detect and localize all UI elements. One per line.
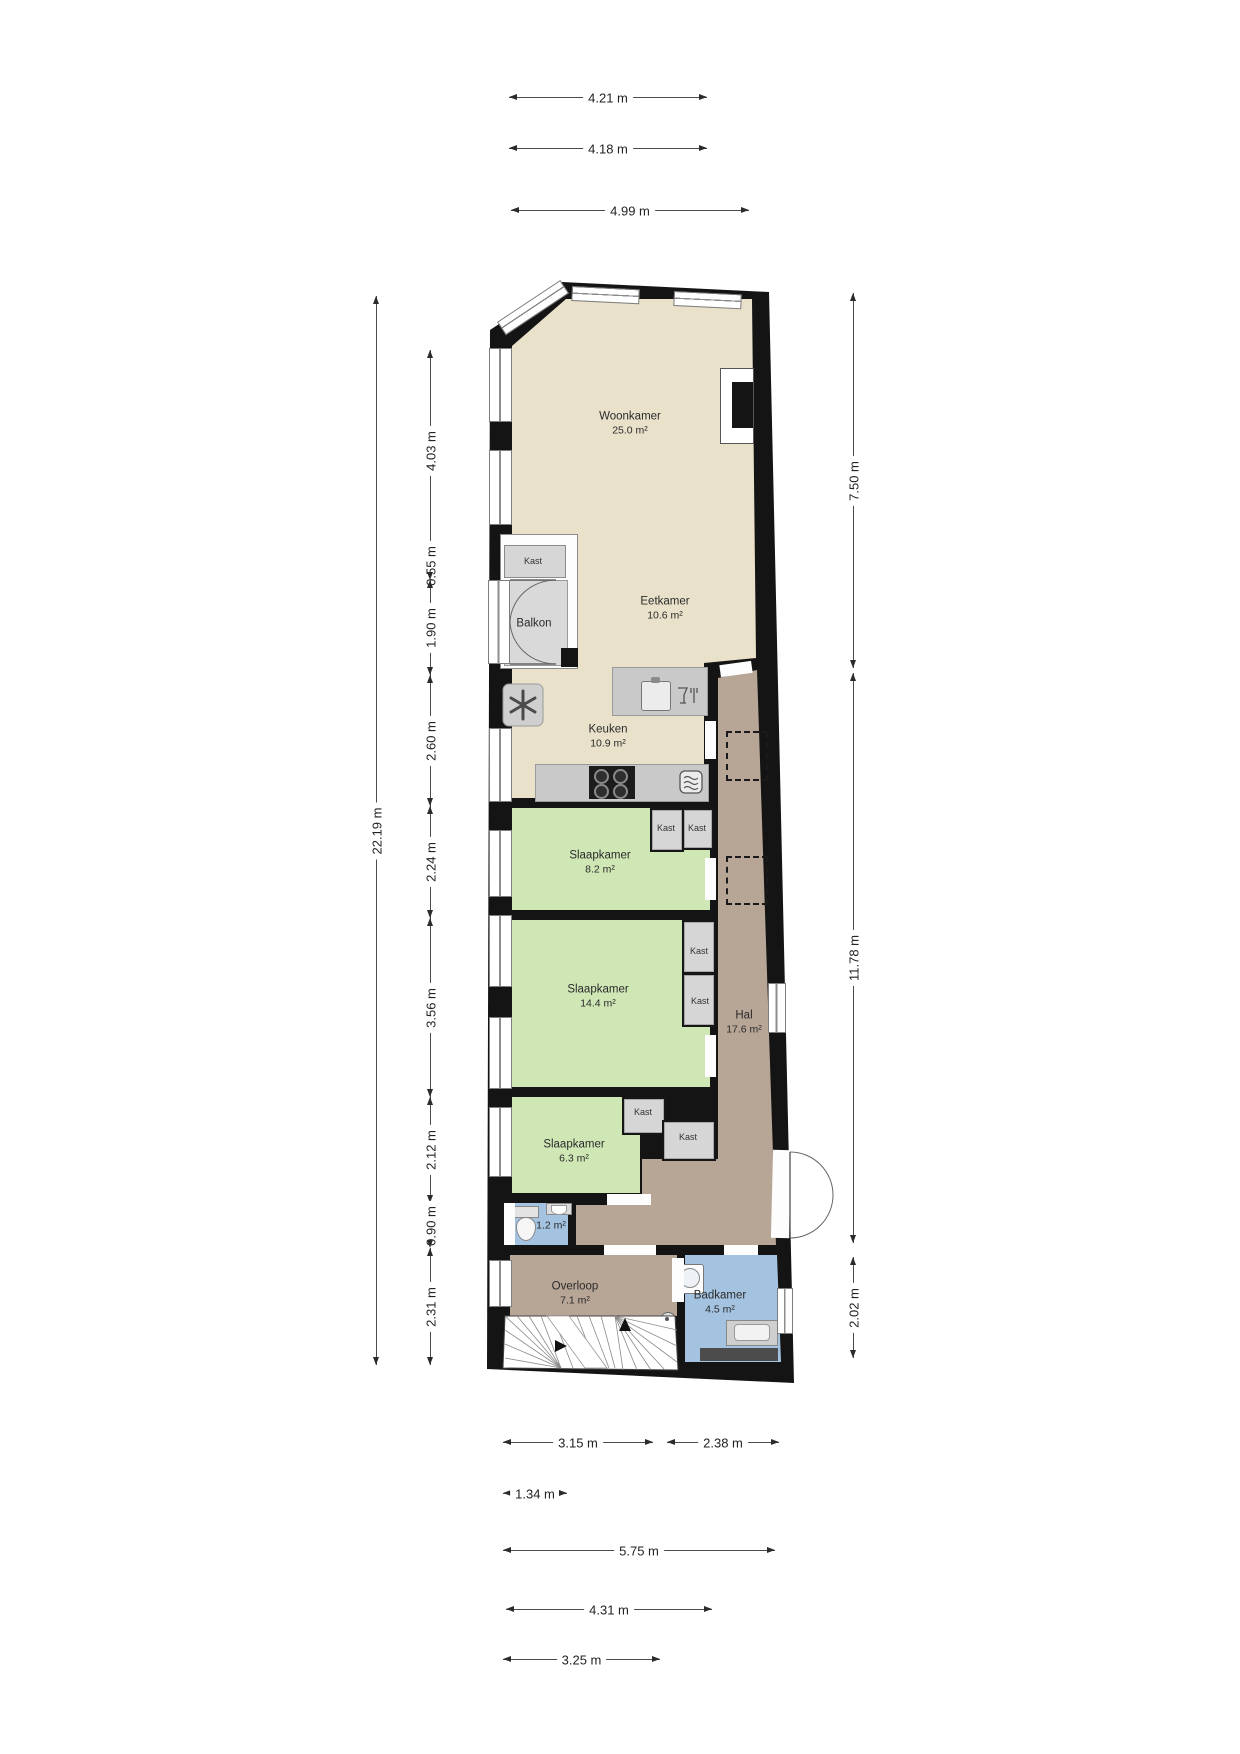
extractor-fan-icon (503, 684, 543, 726)
shaft-dashed-box (726, 731, 768, 781)
room-area: 1.2 m² (536, 1220, 566, 1233)
dim-top-1: 4.21 m (509, 97, 707, 98)
kast-text: Kast (690, 946, 708, 956)
door-opening-kitchen-hal (705, 721, 716, 759)
window (489, 1107, 512, 1177)
room-area: 4.5 m² (705, 1304, 735, 1317)
dim-left-6: 3.56 m (430, 918, 431, 1097)
dim-left-2: 0.55 m (430, 552, 431, 580)
dim-right-1: 7.50 m (853, 293, 854, 668)
bath-ledge (700, 1348, 778, 1361)
room-area: 25.0 m² (612, 425, 648, 438)
dim-label: 5.75 m (614, 1544, 664, 1559)
dim-left-5: 2.24 m (430, 806, 431, 918)
room-area: 10.9 m² (590, 738, 626, 751)
dim-left-overall: 22.19 m (376, 296, 377, 1365)
dim-left-4: 2.60 m (430, 675, 431, 806)
dim-label: 4.31 m (584, 1603, 634, 1618)
room-label-slaapkamer-3: Slaapkamer 6.3 m² (543, 1139, 604, 1166)
shaft-dashed-box (726, 856, 768, 905)
wc-sink-basin (551, 1205, 567, 1215)
window (489, 348, 512, 422)
kast-text: Kast (679, 1132, 697, 1142)
window (489, 728, 512, 802)
balkon-railing (488, 580, 510, 664)
dim-left-8: 0.90 m (430, 1203, 431, 1248)
room-name: Overloop (552, 1281, 599, 1294)
room-label-slaapkamer-1: Slaapkamer 8.2 m² (569, 850, 630, 877)
room-label-woonkamer: Woonkamer 25.0 m² (599, 411, 661, 438)
dim-label: 4.99 m (605, 204, 655, 219)
dim-label: 2.02 m (847, 1283, 862, 1333)
dim-label: 7.50 m (847, 456, 862, 506)
shower-icon-dot (665, 1317, 669, 1321)
kitchen-faucet-icon (651, 677, 660, 683)
vanity-basin (734, 1324, 770, 1341)
window (489, 450, 512, 525)
room-label-wc: 1.2 m² (536, 1220, 566, 1233)
dim-label: 4.18 m (583, 142, 633, 157)
door-opening-hal-badkamer (724, 1245, 758, 1255)
dim-bottom-1: 3.15 m (503, 1442, 653, 1443)
room-label-slaapkamer-2: Slaapkamer 14.4 m² (567, 984, 628, 1011)
room-area: 10.6 m² (647, 610, 683, 623)
oven-icon (679, 770, 703, 794)
window (777, 1288, 793, 1334)
room-name: Badkamer (694, 1290, 746, 1303)
dim-top-2: 4.18 m (509, 148, 707, 149)
window (768, 983, 786, 1033)
dim-label: 3.15 m (553, 1436, 603, 1451)
dim-label: 1.34 m (510, 1487, 560, 1502)
floor-plan-page: 4.21 m 4.18 m 4.99 m 3.15 m 2.38 m 1.34 … (0, 0, 1240, 1754)
dim-bottom-3: 1.34 m (503, 1493, 567, 1494)
kast-label: Kast (657, 823, 675, 833)
room-area: 7.1 m² (560, 1295, 590, 1308)
room-label-balkon: Balkon (516, 618, 551, 631)
door-opening-badkamer-left (672, 1258, 684, 1302)
dim-right-2: 11.78 m (853, 673, 854, 1243)
room-label-hal: Hal 17.6 m² (726, 1010, 762, 1037)
kast-text: Kast (657, 823, 675, 833)
window (489, 1260, 512, 1307)
room-name: Balkon (516, 618, 551, 631)
door-opening-hal-slaapkamer3 (607, 1194, 651, 1205)
room-name: Eetkamer (640, 596, 689, 609)
kast-text: Kast (691, 996, 709, 1006)
kast-label: Kast (634, 1107, 652, 1117)
dishwasher-icon (676, 686, 698, 708)
room-area: 8.2 m² (585, 864, 615, 877)
entry-double-door-arcs (788, 1150, 836, 1240)
room-area: 14.4 m² (580, 998, 616, 1011)
burner-icon (594, 769, 609, 784)
kast-label: Kast (688, 823, 706, 833)
dim-label: 2.60 m (424, 716, 439, 766)
room-name: Slaapkamer (567, 984, 628, 997)
kast-label: Kast (679, 1132, 697, 1142)
window (489, 915, 512, 987)
dim-label: 22.19 m (370, 802, 385, 859)
kast-label: Kast (690, 946, 708, 956)
dim-label: 3.56 m (424, 983, 439, 1033)
kast-text: Kast (524, 556, 542, 566)
dim-top-3: 4.99 m (511, 210, 749, 211)
room-label-eetkamer: Eetkamer 10.6 m² (640, 596, 689, 623)
door-opening-hal-overloop (604, 1245, 656, 1255)
dim-label: 1.90 m (424, 603, 439, 653)
room-name: Slaapkamer (569, 850, 630, 863)
room-name: Keuken (588, 724, 627, 737)
dim-left-9: 2.31 m (430, 1248, 431, 1365)
burner-icon (613, 784, 628, 799)
dim-label: 11.78 m (847, 930, 862, 986)
door-opening-hal-slaapkamer2 (705, 1035, 716, 1077)
dim-left-1: 4.03 m (430, 350, 431, 552)
dim-label: 0.90 m (424, 1201, 439, 1251)
dim-label: 3.25 m (557, 1653, 607, 1668)
room-name: Woonkamer (599, 411, 661, 424)
room-area: 6.3 m² (559, 1153, 589, 1166)
dim-label: 4.21 m (583, 91, 633, 106)
room-label-badkamer: Badkamer 4.5 m² (694, 1290, 746, 1317)
kitchen-sink-icon (641, 681, 671, 711)
kast-text: Kast (688, 823, 706, 833)
kast-text: Kast (634, 1107, 652, 1117)
door-opening-hal-slaapkamer1 (705, 858, 716, 900)
dim-label: 2.31 m (424, 1282, 439, 1332)
dim-bottom-2: 2.38 m (667, 1442, 779, 1443)
dim-label: 4.03 m (424, 426, 439, 476)
room-label-overloop: Overloop 7.1 m² (552, 1281, 599, 1308)
room-label-keuken: Keuken 10.9 m² (588, 724, 627, 751)
room-area: 17.6 m² (726, 1024, 762, 1037)
dim-left-7: 2.12 m (430, 1097, 431, 1203)
chimney-block (732, 382, 753, 428)
kast-label: Kast (524, 556, 542, 566)
dim-right-3: 2.02 m (853, 1257, 854, 1358)
room-name: Slaapkamer (543, 1139, 604, 1152)
door-opening-wc (504, 1203, 515, 1245)
dim-bottom-5: 4.31 m (506, 1609, 712, 1610)
dim-label: 2.12 m (424, 1125, 439, 1175)
staircase (503, 1312, 679, 1374)
dim-label: 2.24 m (424, 837, 439, 887)
dim-label: 2.38 m (698, 1436, 748, 1451)
burner-icon (594, 784, 609, 799)
dim-bottom-6: 3.25 m (503, 1659, 660, 1660)
window (489, 830, 512, 897)
burner-icon (613, 769, 628, 784)
dim-left-3: 1.90 m (430, 580, 431, 675)
kast-label: Kast (691, 996, 709, 1006)
room-name: Hal (735, 1010, 752, 1023)
window (489, 1017, 512, 1089)
dim-bottom-4: 5.75 m (503, 1550, 775, 1551)
